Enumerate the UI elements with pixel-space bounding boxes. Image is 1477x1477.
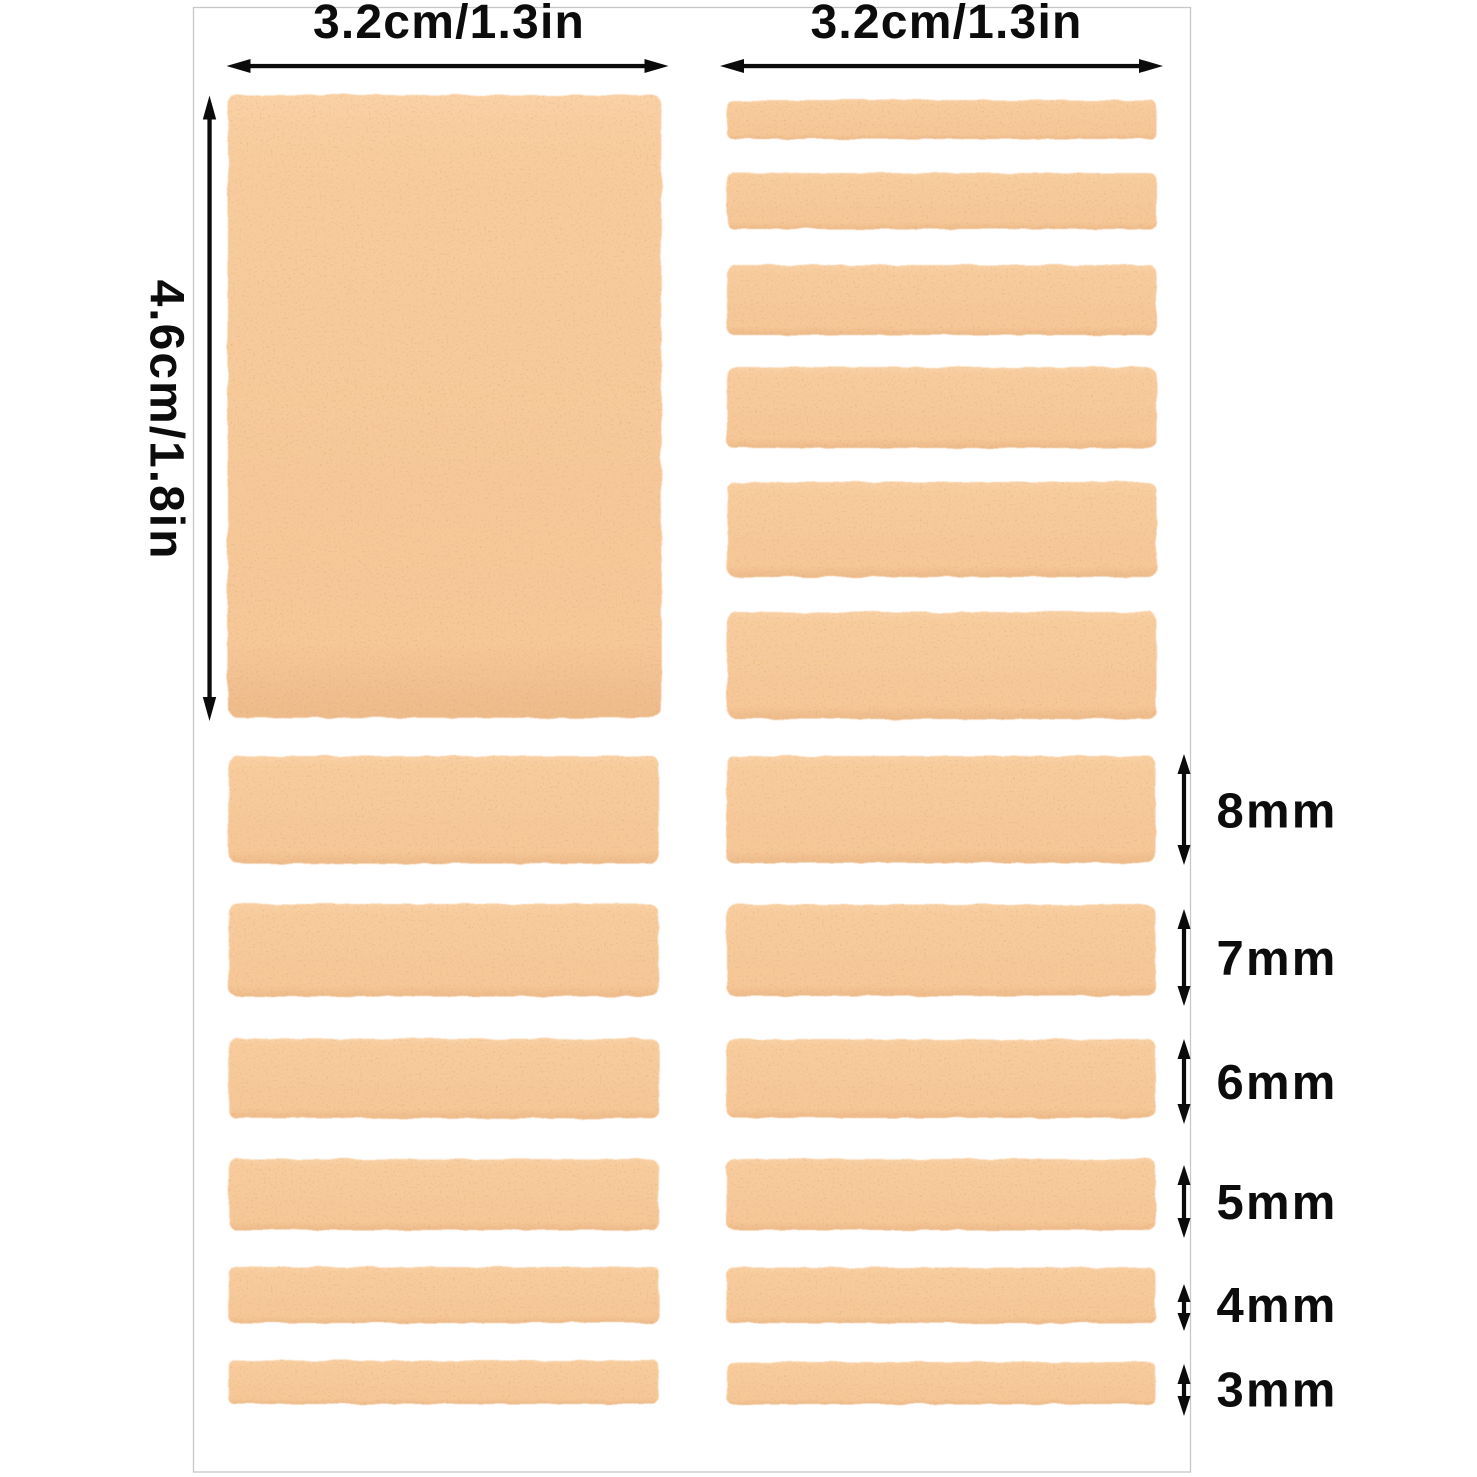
svg-text:3.2cm/1.3in: 3.2cm/1.3in (810, 0, 1082, 49)
svg-text:3.2cm/1.3in: 3.2cm/1.3in (313, 0, 585, 49)
svg-text:8mm: 8mm (1217, 785, 1338, 839)
svg-text:6mm: 6mm (1217, 1056, 1338, 1110)
svg-text:4mm: 4mm (1217, 1279, 1338, 1333)
svg-text:3mm: 3mm (1217, 1364, 1338, 1418)
svg-text:5mm: 5mm (1217, 1176, 1338, 1230)
svg-text:4.6cm/1.8in: 4.6cm/1.8in (139, 280, 192, 561)
svg-text:7mm: 7mm (1217, 932, 1338, 986)
